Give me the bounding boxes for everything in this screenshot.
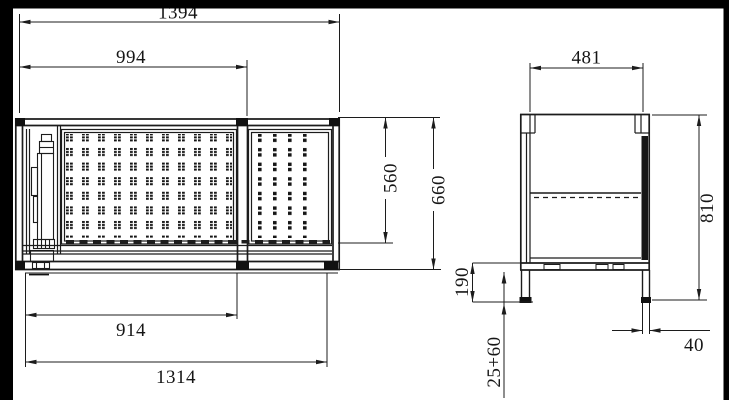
dim-base-width — [26, 273, 328, 367]
scan-border-top — [0, 0, 729, 9]
technical-drawing-canvas: 1394 994 914 1314 481 40 560 660 810 190… — [0, 0, 729, 400]
right-foot — [641, 297, 651, 303]
side-view — [520, 114, 652, 303]
perforated-panel-right — [249, 130, 332, 245]
scan-border-left — [0, 0, 13, 400]
dim-leg-width — [612, 303, 710, 334]
perforated-panel-main — [62, 130, 237, 245]
dim-panel-width-label: 914 — [116, 320, 146, 341]
scan-border-right — [724, 0, 729, 400]
front-bottom-channel — [23, 246, 338, 276]
dim-foot-adjust-label: 25+60 — [484, 336, 505, 387]
side-frame — [520, 114, 650, 270]
dim-opening-height-label: 560 — [381, 163, 402, 193]
front-view — [15, 118, 340, 275]
side-mid-divider — [530, 193, 641, 198]
damper-actuator — [31, 135, 55, 269]
technical-drawing: 1394 994 914 1314 481 40 560 660 810 190… — [0, 0, 729, 400]
dim-base-height-label: 190 — [452, 267, 473, 297]
dim-overall-height-label: 810 — [697, 193, 718, 223]
side-corner-posts — [521, 114, 649, 133]
dim-overall-width — [20, 14, 340, 113]
dim-base-width-label: 1314 — [156, 367, 196, 388]
dim-side-width — [530, 63, 643, 112]
dim-body-height-label: 660 — [429, 175, 450, 205]
dim-opening-width-label: 994 — [116, 47, 146, 68]
dim-opening-width — [20, 60, 248, 116]
side-base-rail — [544, 265, 624, 270]
side-legs — [520, 270, 652, 303]
dim-leg-width-label: 40 — [684, 335, 704, 356]
dim-side-width-label: 481 — [572, 48, 602, 69]
